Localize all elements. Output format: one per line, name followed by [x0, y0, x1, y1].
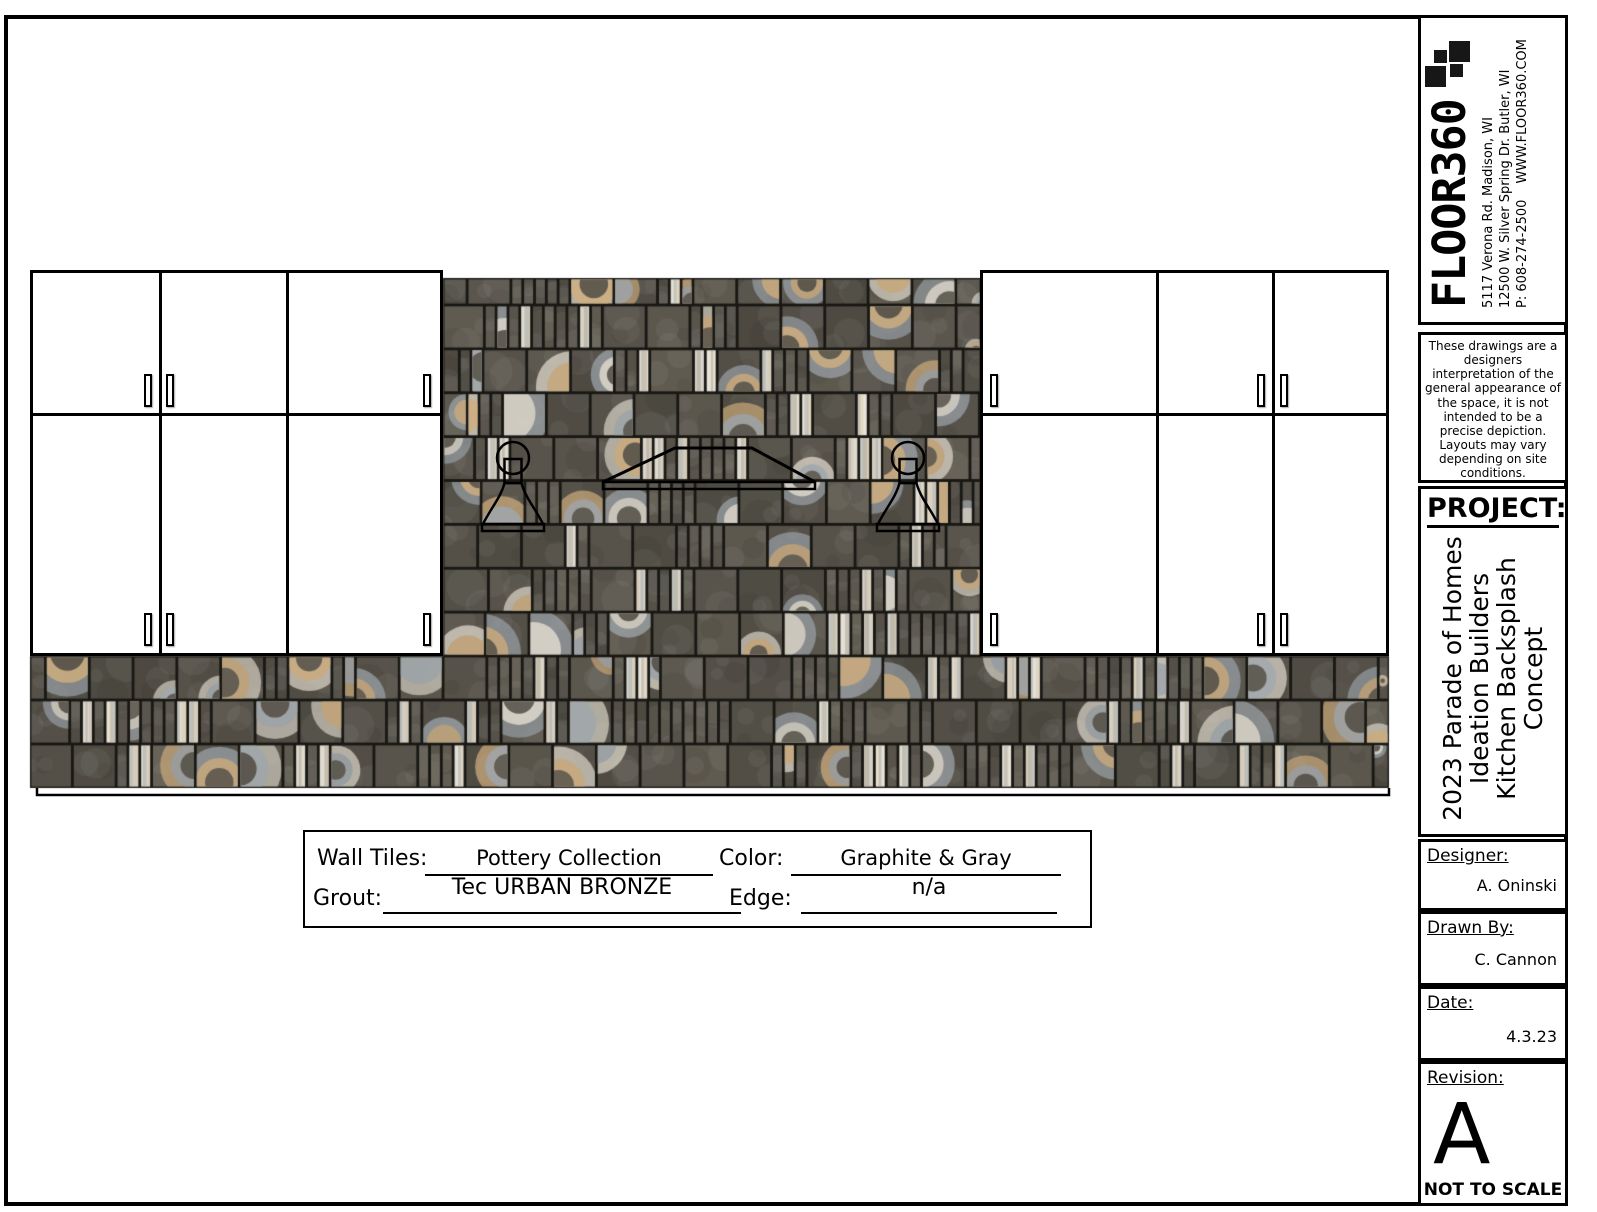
disclaimer-box: These drawings are a designers interpret…	[1418, 332, 1568, 483]
project-line-1: 2023 Parade of Homes	[1439, 536, 1466, 821]
cabinet-door-handle	[1280, 613, 1288, 646]
floor360-logo-text: FLOOR360	[1427, 99, 1472, 308]
drawn-by-box: Drawn By: C. Cannon	[1418, 911, 1568, 986]
revision-value: A	[1433, 1092, 1490, 1176]
color-label: Color:	[719, 846, 783, 871]
cabinet-door-handle	[166, 613, 174, 646]
cabinet-door-divider	[286, 273, 289, 653]
date-box: Date: 4.3.23	[1418, 986, 1568, 1061]
drawing-sheet: Wall Tiles: Pottery Collection Color: Gr…	[0, 0, 1597, 1212]
date-value: 4.3.23	[1506, 1027, 1557, 1046]
color-value: Graphite & Gray	[791, 838, 1061, 876]
tile-spec-box: Wall Tiles: Pottery Collection Color: Gr…	[303, 830, 1092, 928]
grout-label: Grout:	[313, 886, 382, 911]
date-label: Date:	[1421, 989, 1565, 1013]
upper-cabinets-left	[30, 270, 443, 656]
cabinet-door-handle	[144, 613, 152, 646]
designer-value: A. Oninski	[1477, 876, 1557, 895]
address-line-1: 5117 Verona Rd. Madison, WI	[1480, 10, 1497, 308]
cabinet-door-handle	[1280, 374, 1288, 407]
project-line-3: Kitchen Backsplash	[1493, 557, 1520, 800]
floor360-pixel-mark-icon	[1425, 41, 1473, 89]
cabinet-door-handle	[423, 613, 431, 646]
not-to-scale-note: NOT TO SCALE	[1421, 1180, 1565, 1200]
cabinet-door-handle	[1257, 613, 1265, 646]
cabinet-door-handle	[990, 613, 998, 646]
drawn-by-label: Drawn By:	[1421, 914, 1565, 938]
phone-number: P: 608-274-2500	[1514, 200, 1531, 308]
cabinet-door-handle	[166, 374, 174, 407]
grout-value: Tec URBAN BRONZE	[383, 874, 741, 914]
upper-cabinets-right	[980, 270, 1389, 656]
revision-box: Revision: A NOT TO SCALE	[1418, 1061, 1568, 1206]
project-box: PROJECT: 2023 Parade of Homes Ideation B…	[1418, 486, 1568, 837]
cabinet-shelf-line	[33, 413, 440, 416]
project-label: PROJECT:	[1427, 493, 1559, 528]
logo-box: FLOOR360 5117 Verona Rd. Madison, WI 125…	[1418, 15, 1568, 325]
cabinet-door-divider	[159, 273, 162, 653]
cabinet-door-divider	[1272, 273, 1275, 653]
cabinet-door-handle	[144, 374, 152, 407]
website-url: WWW.FLOOR360.COM	[1514, 39, 1531, 183]
cabinet-door-handle	[1257, 374, 1265, 407]
project-line-2: Ideation Builders	[1466, 573, 1493, 784]
wall-tiles-value: Pottery Collection	[425, 838, 713, 876]
cabinet-door-divider	[1156, 273, 1159, 653]
edge-label: Edge:	[729, 886, 792, 911]
cabinet-door-handle	[423, 374, 431, 407]
designer-label: Designer:	[1421, 842, 1565, 866]
wall-tiles-label: Wall Tiles:	[317, 846, 427, 871]
project-line-4: Concept	[1520, 627, 1547, 730]
edge-value: n/a	[801, 874, 1057, 914]
cabinet-shelf-line	[983, 413, 1386, 416]
drawn-by-value: C. Cannon	[1474, 950, 1557, 969]
disclaimer-text: These drawings are a designers interpret…	[1421, 335, 1565, 485]
address-line-2: 12500 W. Silver Spring Dr. Butler, WI	[1497, 10, 1514, 308]
designer-box: Designer: A. Oninski	[1418, 839, 1568, 911]
cabinet-door-handle	[990, 374, 998, 407]
